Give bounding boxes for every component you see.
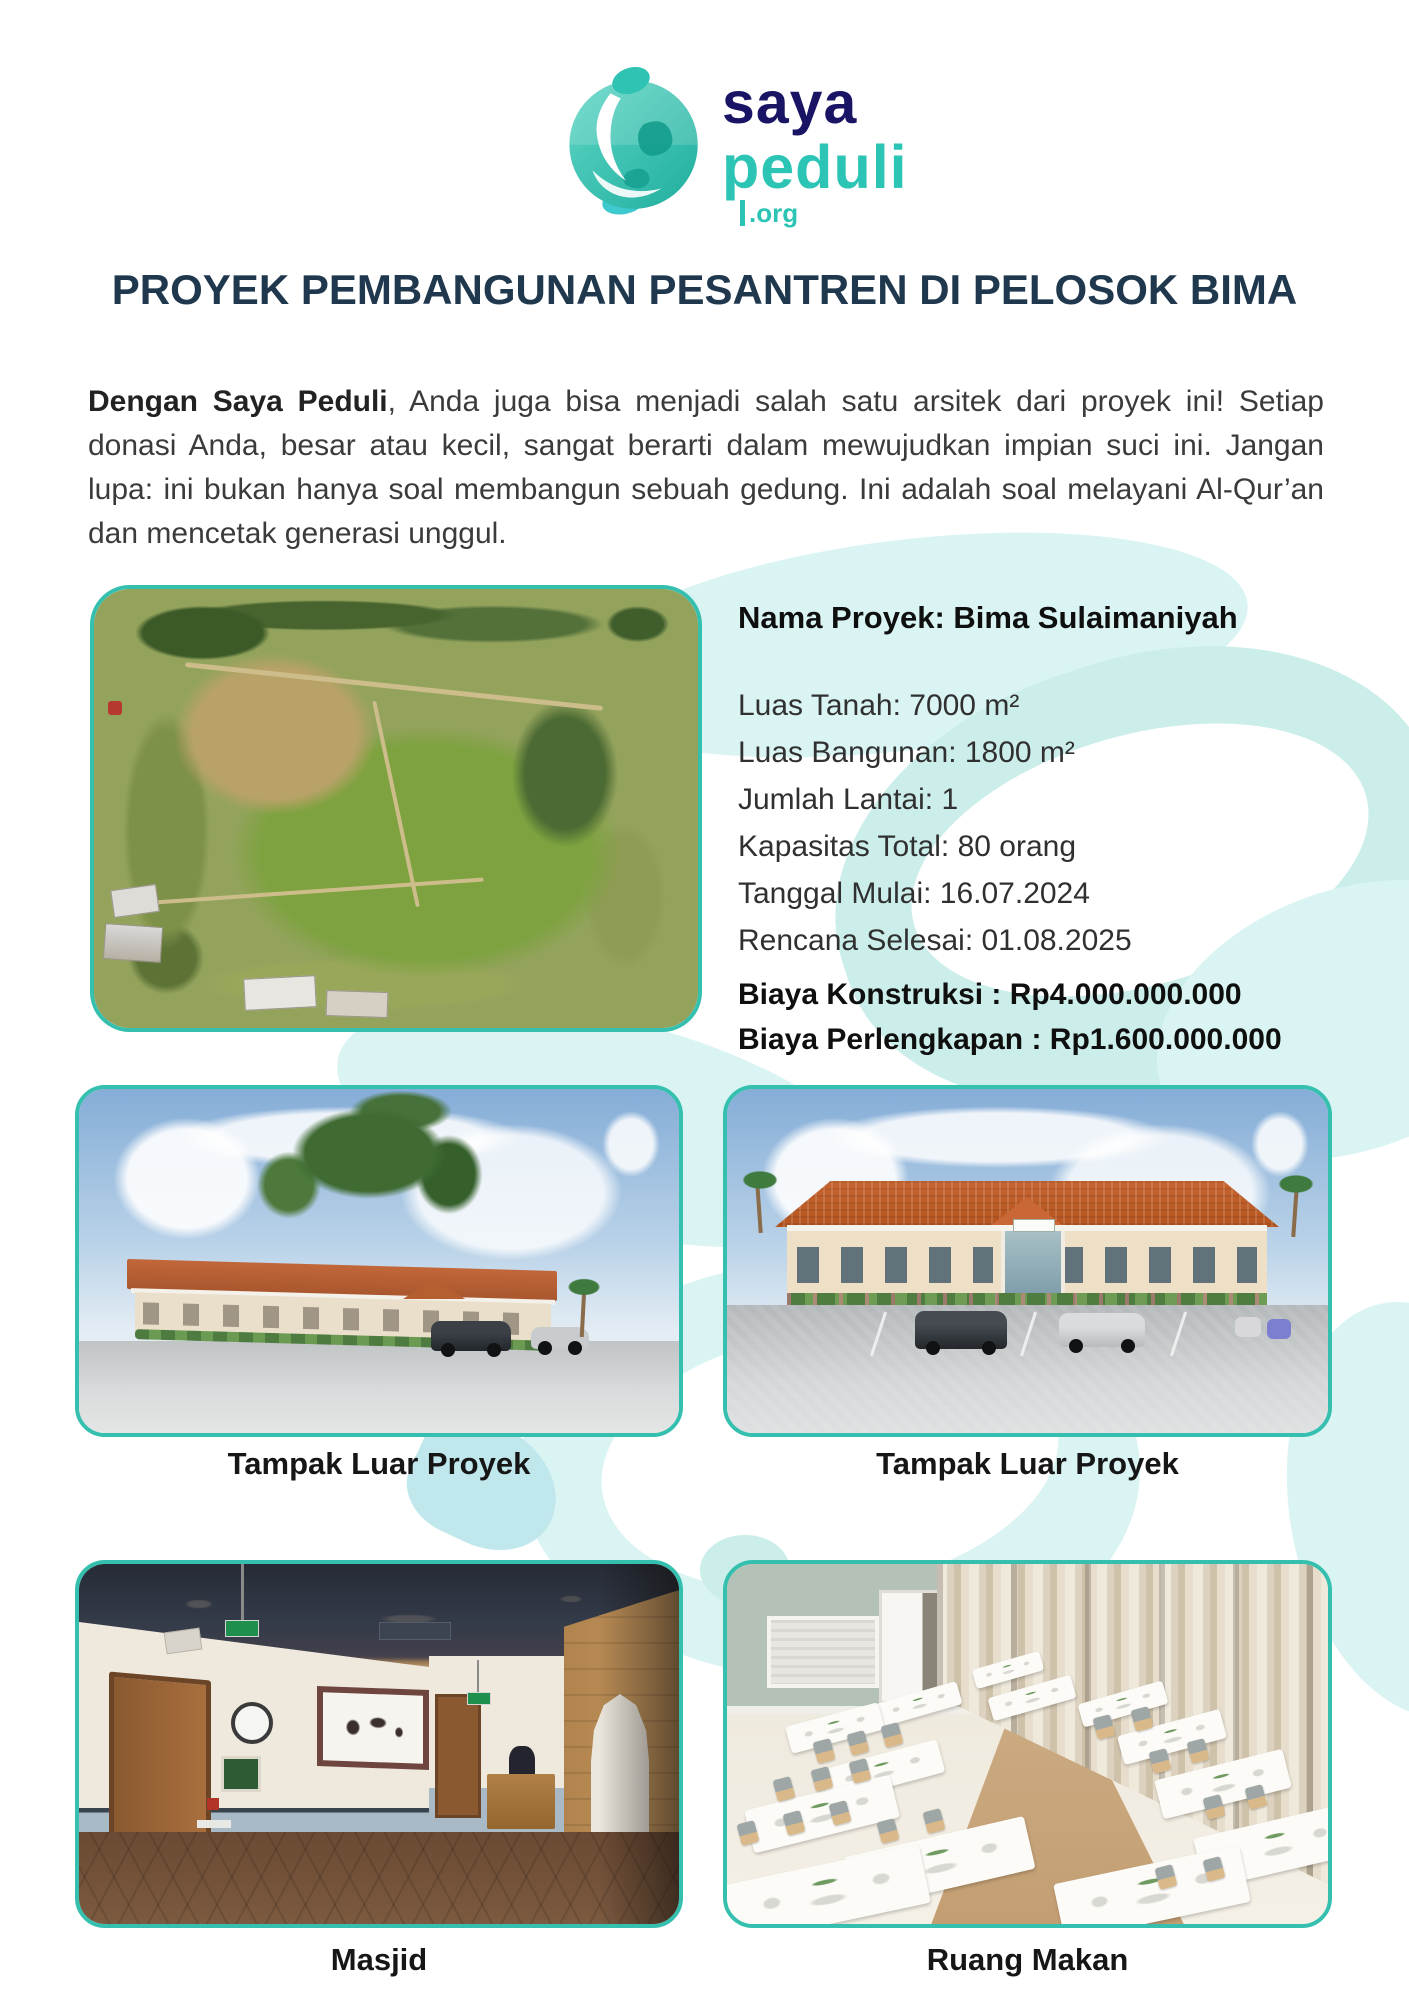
masjid-interior-render (75, 1560, 683, 1928)
farm-hut (243, 975, 317, 1011)
spec-jumlah-lantai: Jumlah Lantai: 1 (738, 776, 1358, 823)
spec-tanggal-mulai: Tanggal Mulai: 16.07.2024 (738, 870, 1358, 917)
spec-rencana-selesai: Rencana Selesai: 01.08.2025 (738, 917, 1358, 964)
cost-perlengkapan: Biaya Perlengkapan : Rp1.600.000.000 (738, 1017, 1358, 1062)
spec-luas-bangunan: Luas Bangunan: 1800 m² (738, 729, 1358, 776)
hedge (787, 1293, 1267, 1305)
exit-sign (467, 1692, 491, 1705)
brand-word-peduli: peduli (722, 137, 908, 198)
project-details: Nama Proyek: Bima Sulaimaniyah Luas Tana… (738, 600, 1358, 1062)
saya-peduli-logo-icon (552, 60, 710, 214)
wall-clock (231, 1702, 273, 1744)
spec-luas-tanah: Luas Tanah: 7000 m² (738, 682, 1358, 729)
globe-person-icon (552, 60, 710, 214)
exit-sign (225, 1620, 259, 1637)
caption-tampak-luar-right: Tampak Luar Proyek (723, 1446, 1332, 1482)
farm-hut (326, 990, 389, 1018)
light-switches (197, 1820, 231, 1828)
intro-paragraph: Dengan Saya Peduli, Anda juga bisa menja… (88, 380, 1324, 556)
palm-fronds (735, 1167, 785, 1193)
project-name: Nama Proyek: Bima Sulaimaniyah (738, 600, 1358, 636)
cost-block: Biaya Konstruksi : Rp4.000.000.000 Biaya… (738, 972, 1358, 1062)
page-title: PROYEK PEMBANGUNAN PESANTREN DI PELOSOK … (0, 266, 1409, 314)
brand-logo: saya peduli .org (722, 74, 908, 226)
caption-ruang-makan: Ruang Makan (723, 1942, 1332, 1978)
glass-entrance (1001, 1231, 1065, 1297)
red-roof-marker (108, 701, 122, 715)
intro-lead: Dengan Saya Peduli (88, 385, 388, 418)
dark-car (431, 1321, 511, 1351)
caption-tampak-luar-left: Tampak Luar Proyek (75, 1446, 683, 1482)
back-door (435, 1694, 481, 1818)
silver-car (1059, 1313, 1145, 1347)
exit-sign-stem (241, 1564, 244, 1622)
roller-window (767, 1616, 879, 1688)
dining-room-render (723, 1560, 1332, 1928)
palm-fronds (561, 1275, 607, 1299)
brand-suffix-org: .org (740, 200, 908, 226)
tree-canopy (209, 1085, 529, 1269)
wall-art (221, 1756, 261, 1792)
exterior-render-front (723, 1085, 1332, 1437)
scooter (1267, 1319, 1291, 1339)
calligraphy-frame (317, 1686, 429, 1770)
palm-fronds (1271, 1171, 1321, 1197)
brand-word-saya: saya (722, 74, 908, 133)
exit-sign-stem (477, 1660, 479, 1694)
building-facade (787, 1231, 1267, 1297)
exterior-render-angled (75, 1085, 683, 1437)
minbar-desk (487, 1774, 555, 1829)
spec-kapasitas: Kapasitas Total: 80 orang (738, 823, 1358, 870)
window-row (797, 1247, 993, 1283)
caption-masjid: Masjid (75, 1942, 683, 1978)
scooter (1235, 1317, 1261, 1337)
cost-konstruksi: Biaya Konstruksi : Rp4.000.000.000 (738, 972, 1358, 1017)
carpet-floor (79, 1832, 679, 1924)
entrance-sign (1013, 1219, 1055, 1232)
shadow-vignette (599, 1564, 679, 1924)
window-row (1061, 1247, 1257, 1283)
alarm-box (207, 1798, 219, 1810)
farm-hut (103, 923, 163, 963)
dark-suv (915, 1311, 1007, 1349)
parking-pavement (79, 1341, 679, 1433)
aerial-site-photo (90, 585, 702, 1032)
flyer-page: saya peduli .org PROYEK PEMBANGUNAN PESA… (0, 0, 1409, 2000)
ceiling-vent (379, 1622, 451, 1640)
